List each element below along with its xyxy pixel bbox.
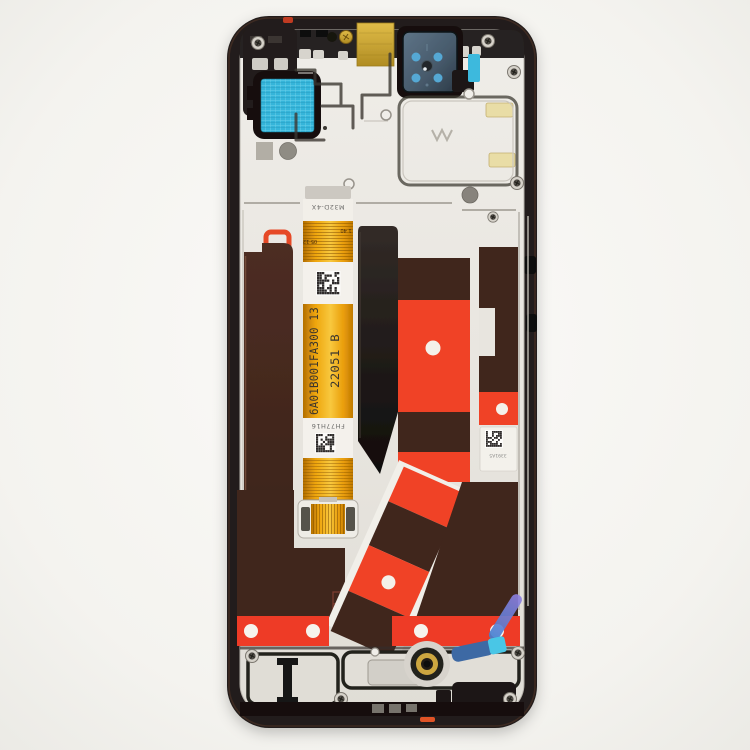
top-hook <box>327 32 337 42</box>
connector-pad-right <box>346 507 355 531</box>
connector-pad-left <box>301 507 310 531</box>
pin-mark-left: 05 12 <box>303 238 317 244</box>
screw-2 <box>482 35 495 48</box>
bottom-section <box>240 636 525 722</box>
strip-hole-3 <box>414 624 428 638</box>
band-tooth-2 <box>389 704 401 713</box>
bracket-slot-2 <box>268 36 282 43</box>
bottom-orange-mark <box>420 717 435 722</box>
cyan-strip <box>468 54 480 82</box>
hole-3 <box>381 110 391 120</box>
ring-center <box>424 661 431 668</box>
latch-4 <box>313 50 324 59</box>
camera-center-hole <box>422 61 433 72</box>
cable-serial-text: 6A01B001FA300 13 <box>307 307 321 415</box>
screw-4 <box>511 177 524 190</box>
top-slot-1 <box>300 30 311 37</box>
adhesive-label-text: 3391A5 <box>489 452 507 458</box>
pin-mark-right: 1 40 <box>340 227 351 233</box>
bracket-latch-1 <box>252 58 268 70</box>
hole-b1 <box>371 648 379 656</box>
mesh-cyan-pad <box>261 79 314 132</box>
product-photo: Smartphone LCD screen assembly with fram… <box>0 0 750 750</box>
hole-1 <box>464 89 474 99</box>
lcd-flex-cable: M32D-4X 05 12 1 40 6A01B001FA300 13 2205… <box>298 186 358 538</box>
cable-top-label-text: M32D-4X <box>311 203 344 211</box>
cable-fanout-traces <box>303 458 353 502</box>
grey-disc <box>280 143 297 160</box>
camera-lens-dot-1 <box>412 53 421 62</box>
ring-component <box>404 641 450 687</box>
screw-1 <box>252 37 265 50</box>
camera-lens-dot-4 <box>434 74 443 83</box>
connector-notch <box>319 497 337 502</box>
earpiece-mesh-assembly <box>247 71 321 139</box>
i-beam-bar <box>283 658 292 704</box>
cable-shield <box>305 186 351 199</box>
top-slot-2 <box>316 30 328 37</box>
yellow-adhesive-1 <box>486 103 513 117</box>
datamatrix-cable-top <box>316 271 341 296</box>
latch-5 <box>338 51 348 60</box>
datamatrix-cable-bottom <box>315 433 335 453</box>
red-adhesive-a <box>398 300 470 412</box>
screw-5 <box>488 212 498 222</box>
frame-red-mark <box>283 17 293 23</box>
screw-3 <box>508 66 521 79</box>
band-tooth-1 <box>372 704 384 713</box>
screw-b1 <box>246 650 259 663</box>
camera-mark-dot <box>426 84 429 87</box>
connector-gold-stripes <box>311 504 345 534</box>
band-tooth-3 <box>406 704 417 712</box>
maroon-notch <box>479 308 495 356</box>
bracket-latch-2 <box>274 58 288 70</box>
screw-b2 <box>512 647 525 660</box>
strip-hole-1 <box>244 624 258 638</box>
camera-lens-dot-2 <box>434 53 443 62</box>
gold-flex-pad <box>357 23 394 66</box>
adhesive-column-a <box>398 258 470 482</box>
adhesive-hole-b <box>496 403 508 415</box>
camera-lens-dot-3 <box>412 74 421 83</box>
yellow-adhesive-2 <box>489 153 515 167</box>
strip-hole-2 <box>306 624 320 638</box>
pin-hole <box>323 126 327 130</box>
side-button-cutout-1 <box>524 256 536 274</box>
cable-bottom-label-text: FH77H16 <box>311 422 345 430</box>
cable-batch-text: 22051 B <box>328 334 342 388</box>
adhesive-hole-a <box>426 341 441 356</box>
grey-disc-2 <box>462 187 478 203</box>
grey-felt-pad <box>256 142 273 160</box>
middle-section: 3391A5 <box>237 186 528 661</box>
camera-glint <box>423 67 427 71</box>
maroon-patch-a2 <box>398 412 470 452</box>
datamatrix-adhesive <box>485 430 503 448</box>
lcd-assembly-photo: Smartphone LCD screen assembly with fram… <box>0 0 750 750</box>
latch-3 <box>299 49 311 59</box>
maroon-patch-a1 <box>398 258 470 300</box>
phone-assembly: 3391A5 <box>227 16 537 728</box>
adhesive-column-b: 3391A5 <box>479 247 518 471</box>
